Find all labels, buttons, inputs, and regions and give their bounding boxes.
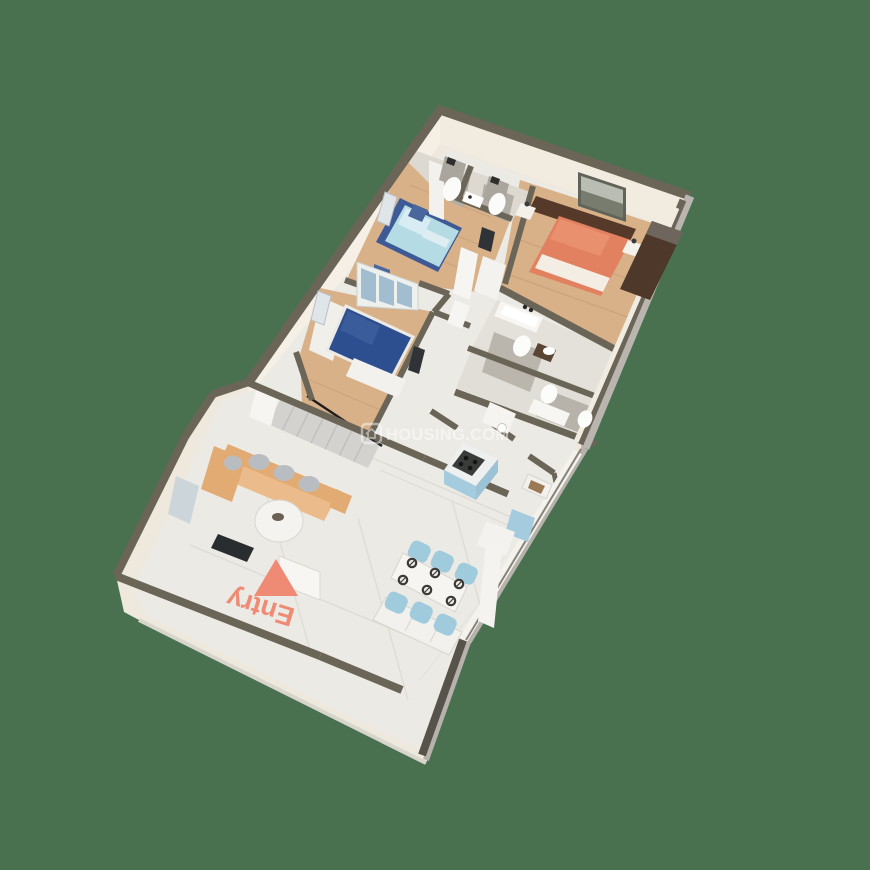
svg-text:HOUSING.COM: HOUSING.COM xyxy=(386,426,509,444)
